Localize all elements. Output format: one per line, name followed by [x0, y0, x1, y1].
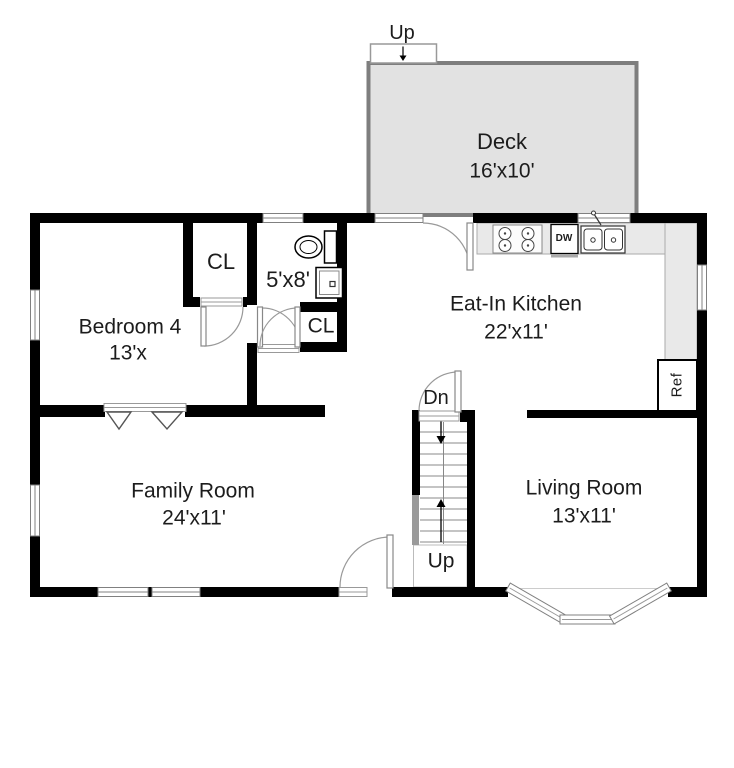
bathroom-sink-icon	[316, 268, 343, 299]
bedroom4-dims-label: 13'x	[109, 343, 147, 364]
bedroom-closet-label: CL	[207, 251, 235, 273]
toilet-icon	[295, 231, 337, 263]
bedroom-closet-door	[201, 307, 243, 346]
front-door	[340, 535, 393, 588]
deck-entry-door	[423, 223, 473, 270]
family-room-dims-label: 24'x11'	[162, 508, 226, 529]
family-room-name-label: Family Room	[131, 481, 255, 502]
living-room-name-label: Living Room	[526, 478, 643, 499]
floor-plan-drawing	[0, 0, 734, 768]
bathroom-closet-label: CL	[308, 316, 335, 337]
bedroom4-name-label: Bedroom 4	[79, 317, 182, 338]
deck-name-label: Deck	[477, 131, 527, 153]
stove-icon	[493, 225, 542, 253]
living-room-dims-label: 13'x11'	[552, 506, 616, 527]
kitchen-name-label: Eat-In Kitchen	[450, 294, 582, 315]
bifold-doors	[104, 404, 186, 430]
deck-up-label: Up	[389, 23, 415, 43]
stairs-up-arrow-icon	[437, 499, 446, 507]
bay-window	[506, 583, 672, 624]
dishwasher-label: DW	[556, 234, 573, 244]
refrigerator-label: Ref	[670, 373, 685, 398]
deck-dims-label: 16'x10'	[469, 161, 534, 182]
stairs-up-label: Up	[428, 551, 455, 572]
stair-rail	[412, 495, 419, 545]
kitchen-dims-label: 22'x11'	[484, 322, 548, 343]
stairs-down-label: Dn	[423, 388, 449, 408]
bathroom-door	[260, 307, 300, 347]
bathroom-dims-label: 5'x8'	[266, 269, 310, 291]
floor-plan: Up Deck 16'x10' Eat-In Kitchen 22'x11' B…	[0, 0, 734, 768]
